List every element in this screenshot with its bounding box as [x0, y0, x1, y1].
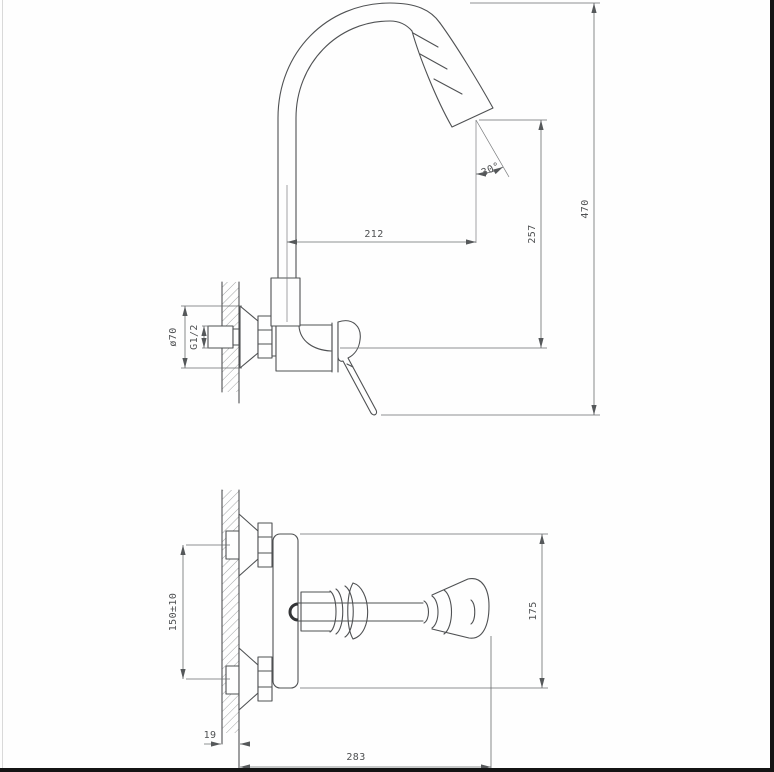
lever-handle	[338, 321, 377, 415]
height-extension-lines	[381, 3, 600, 415]
escutcheon-top	[239, 514, 258, 576]
dim-label-flange: ø70	[168, 327, 179, 346]
spout-arc-inner	[296, 21, 412, 278]
bottom-border-bar	[0, 768, 774, 772]
faucet-technical-drawing: 30° ø70 G1/2 212 257 470	[0, 0, 774, 772]
spray-head-rings	[413, 33, 462, 94]
escutcheon-bottom	[239, 648, 258, 710]
body-plate	[273, 534, 298, 688]
wall-hatch-plan	[222, 490, 239, 733]
left-border-line	[2, 0, 3, 768]
dim-label-tip-height: 257	[527, 224, 538, 243]
inlet-thread	[233, 329, 239, 345]
spray-head	[412, 23, 493, 127]
plan-view: 150±10 175 19 283	[168, 490, 548, 769]
image-borders	[0, 0, 774, 772]
front-view: 30° ø70 G1/2 212 257 470	[168, 3, 600, 415]
drawing-canvas: 30° ø70 G1/2 212 257 470	[0, 0, 774, 772]
dim-label-span: 175	[528, 601, 539, 620]
mounting-nut	[258, 316, 272, 358]
inlet-stub-bottom	[226, 666, 239, 694]
dim-label-depth: 283	[346, 752, 365, 763]
span-extension-lines	[300, 534, 548, 688]
inlet-stub	[208, 326, 233, 348]
spray-head-plan	[424, 579, 489, 639]
dim-label-thread: G1/2	[189, 324, 200, 350]
nut-bottom	[258, 657, 272, 701]
riser-collar	[271, 278, 300, 326]
dim-label-reach: 212	[364, 229, 383, 240]
dim-label-spacing: 150±10	[168, 593, 179, 632]
dim-label-spray-angle: 30°	[480, 161, 502, 179]
dim-label-wall: 19	[204, 730, 217, 741]
nut-top	[258, 523, 272, 567]
escutcheon-cone	[240, 306, 258, 368]
spout-tube	[298, 603, 423, 621]
faucet-body	[276, 325, 332, 371]
cartridge-lines	[332, 322, 338, 372]
dim-label-height: 470	[580, 199, 591, 218]
handle-plan	[301, 583, 368, 639]
right-border-bar	[770, 0, 774, 772]
